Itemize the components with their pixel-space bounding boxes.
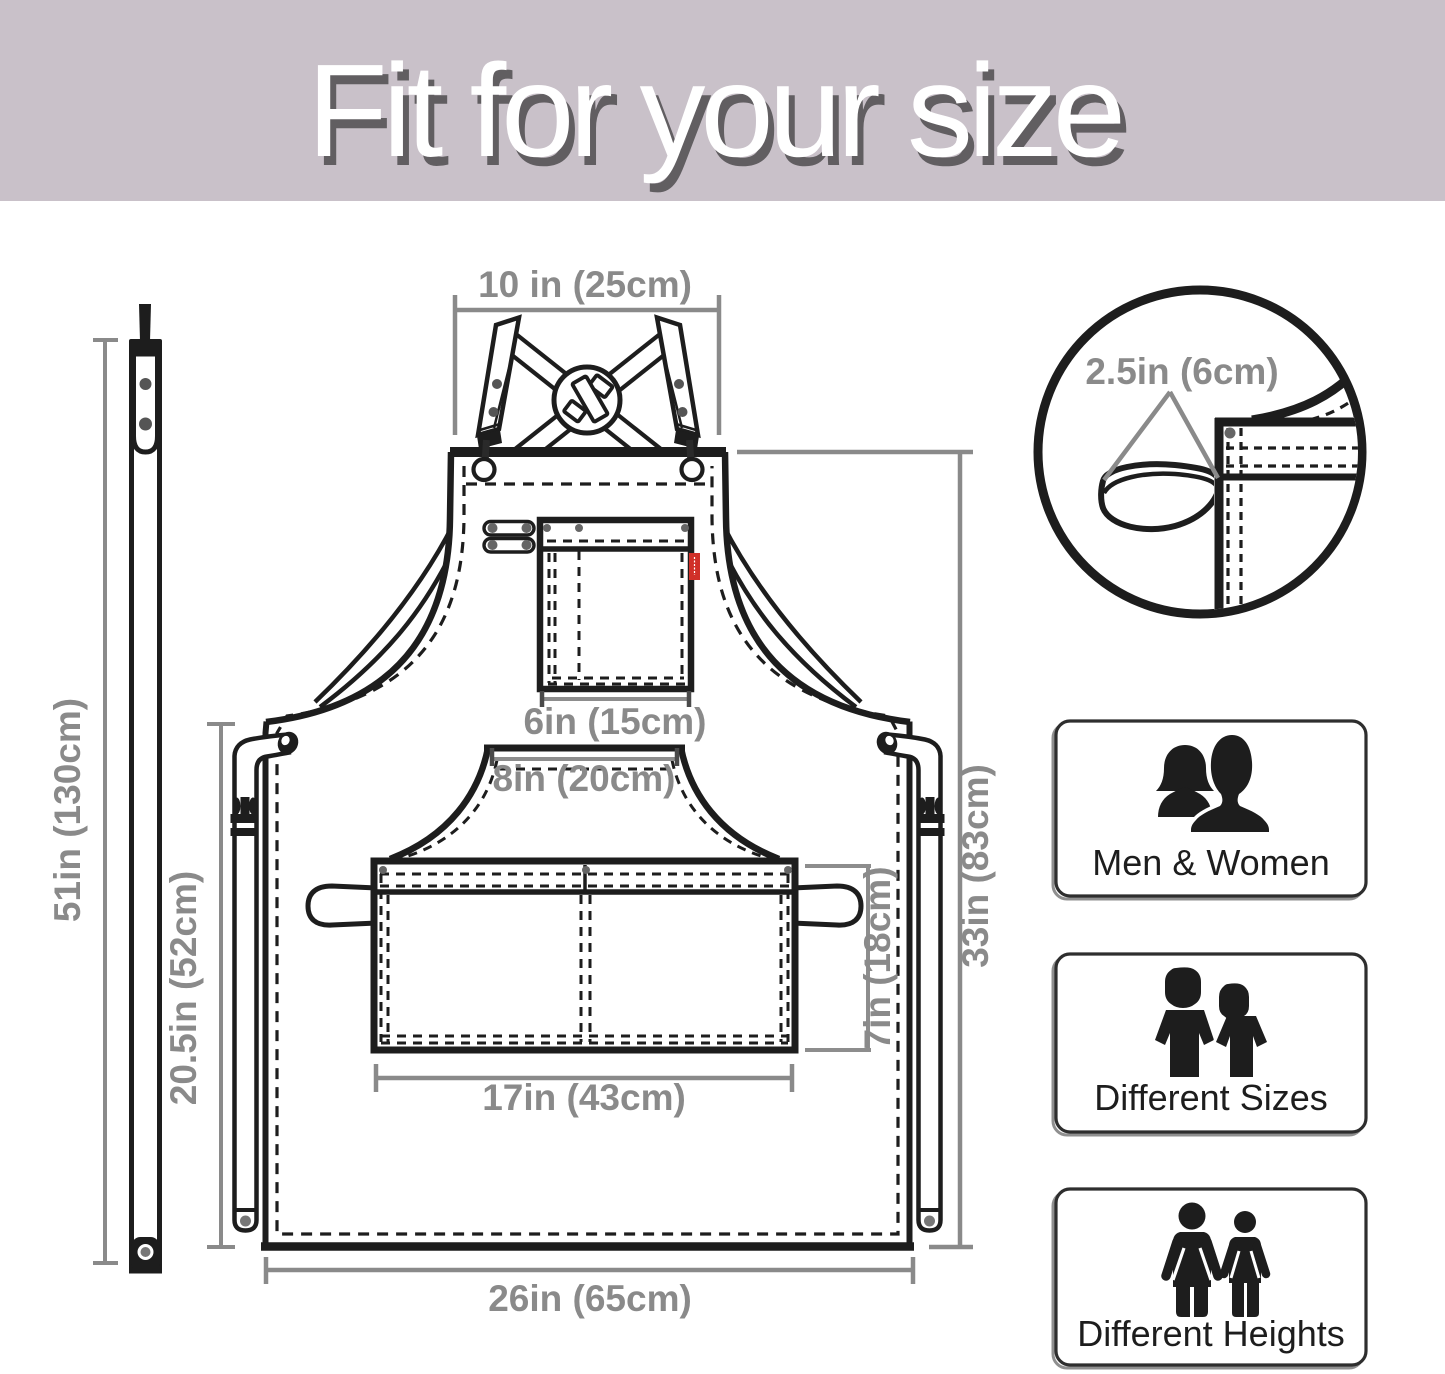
svg-text:Different Sizes: Different Sizes (1094, 1077, 1327, 1118)
svg-text:20.5in (52cm): 20.5in (52cm) (163, 871, 204, 1105)
svg-text:10 in (25cm): 10 in (25cm) (478, 264, 692, 305)
svg-text:7in (18cm): 7in (18cm) (857, 866, 898, 1049)
svg-text:51in (130cm): 51in (130cm) (47, 698, 88, 922)
svg-text:8in (20cm): 8in (20cm) (492, 758, 675, 799)
svg-text:Fit for your size: Fit for your size (307, 37, 1121, 184)
svg-text:26in (65cm): 26in (65cm) (488, 1278, 692, 1319)
svg-text:Different Heights: Different Heights (1077, 1313, 1344, 1354)
svg-text:17in (43cm): 17in (43cm) (482, 1077, 686, 1118)
svg-text:6in (15cm): 6in (15cm) (523, 701, 706, 742)
svg-text:Men & Women: Men & Women (1092, 842, 1329, 883)
svg-text:33in (83cm): 33in (83cm) (955, 764, 996, 968)
svg-text:2.5in (6cm): 2.5in (6cm) (1085, 351, 1278, 392)
